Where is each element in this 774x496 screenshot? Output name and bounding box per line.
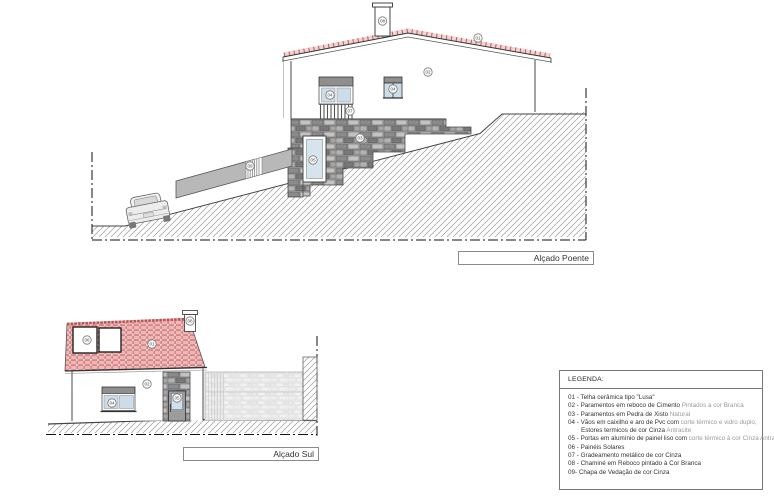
callout-door: 05	[173, 394, 181, 402]
legend-item-muted-text: Pintados a cor Branca	[682, 402, 744, 409]
callout-roof: 01	[148, 340, 156, 348]
poente-roof	[283, 31, 551, 64]
sul-garden-wall	[205, 372, 303, 421]
legend-item-08: 08 - Chaminé em Reboco pintado à Cor Bra…	[568, 460, 756, 468]
svg-text:01: 01	[475, 36, 481, 41]
legend-item-text: 04 - Vãos em caixilho e aro de Pvc com	[568, 419, 681, 426]
legend-item-03: 03 - Paramentos em Pedra de Xisto Natura…	[568, 411, 756, 419]
callout-wall: 02	[424, 68, 432, 76]
sul-boundary-post	[303, 357, 317, 421]
legend-title: LEGENDA:	[560, 371, 762, 389]
callout-fence: 09	[246, 162, 254, 170]
callout-roof: 01	[474, 34, 482, 42]
svg-text:03: 03	[357, 136, 363, 141]
legend-item-06: 06 - Painéis Solares	[568, 444, 756, 452]
svg-text:02: 02	[425, 70, 431, 75]
callout-railing: 07	[346, 107, 354, 115]
svg-text:08: 08	[380, 19, 386, 24]
legend-item-text: 06 - Painéis Solares	[568, 444, 624, 451]
callout-chimney: 08	[378, 17, 386, 25]
svg-text:06: 06	[84, 338, 90, 343]
callout-window-large: 04	[326, 91, 334, 99]
legend-panel: LEGENDA: 01 - Telha cerâmica tipo "Lusa"…	[559, 370, 763, 490]
svg-text:07: 07	[347, 109, 353, 114]
legend-item-text: 01 - Telha cerâmica tipo "Lusa"	[568, 394, 655, 401]
elevation-label-sul: Alçado Sul	[183, 447, 319, 461]
legend-item-muted-text: corte térmico à cor Cinza Antracite	[689, 435, 774, 442]
svg-text:05: 05	[174, 396, 180, 401]
sul-elevation: 06 01 08 02 04 05	[46, 311, 317, 438]
legend-item-muted-text: Natural	[670, 411, 690, 418]
legend-item-04: 04 - Vãos em caixilho e aro de Pvc com c…	[568, 419, 756, 427]
legend-item-05: 05 - Portas em alumínio de painel liso c…	[568, 435, 756, 443]
callout-solar: 06	[83, 336, 91, 344]
callout-door: 05	[309, 156, 317, 164]
legend-item-muted-text: Antracite	[666, 427, 691, 434]
legend-item-04-cont: Estores termicos de cor Cinza Antracite	[568, 427, 756, 435]
svg-text:08: 08	[187, 319, 193, 324]
legend-item-text: Estores termicos de cor Cinza	[581, 427, 666, 434]
sul-window	[101, 387, 137, 412]
svg-text:02: 02	[144, 382, 150, 387]
sul-terrain-hatch	[48, 420, 317, 434]
shutter-box	[319, 77, 353, 86]
svg-text:09: 09	[247, 164, 253, 169]
svg-text:05: 05	[310, 158, 316, 163]
callout-window: 04	[108, 399, 116, 407]
legend-item-text: 05 - Portas em alumínio de painel liso c…	[568, 435, 689, 442]
legend-item-02: 02 - Paramentos em reboco de Cimento Pin…	[568, 402, 756, 410]
legend-items: 01 - Telha cerâmica tipo "Lusa" 02 - Par…	[560, 389, 762, 477]
callout-wall: 02	[143, 380, 151, 388]
elevation-label-poente: Alçado Poente	[458, 251, 594, 265]
poente-elevation: 08 01 02 04 07 04 03 05 09	[92, 3, 586, 240]
legend-item-07: 07 - Gradeamento metálico de cor Cinza	[568, 452, 756, 460]
legend-item-text: 07 - Gradeamento metálico de cor Cinza	[568, 452, 681, 459]
drawing-canvas: 08 01 02 04 07 04 03 05 09	[0, 0, 774, 496]
legend-item-01: 01 - Telha cerâmica tipo "Lusa"	[568, 394, 756, 402]
sul-solar-panels	[73, 327, 121, 353]
legend-item-muted-text: corte térmico e vidro duplo,	[681, 419, 757, 426]
legend-item-text: 08 - Chaminé em Reboco pintado à Cor Bra…	[568, 460, 701, 467]
legend-item-text: 09- Chapa de Vedação de cor Cinza	[568, 469, 670, 476]
legend-item-09: 09- Chapa de Vedação de cor Cinza	[568, 469, 756, 477]
callout-stone-wall: 03	[356, 134, 364, 142]
callout-window-small: 04	[389, 85, 397, 93]
svg-text:04: 04	[327, 93, 333, 98]
svg-text:04: 04	[390, 87, 396, 92]
legend-item-text: 03 - Paramentos em Pedra de Xisto	[568, 411, 670, 418]
legend-item-text: 02 - Paramentos em reboco de Cimento	[568, 402, 682, 409]
svg-text:01: 01	[149, 342, 155, 347]
callout-chimney: 08	[186, 317, 194, 325]
svg-text:04: 04	[109, 401, 115, 406]
